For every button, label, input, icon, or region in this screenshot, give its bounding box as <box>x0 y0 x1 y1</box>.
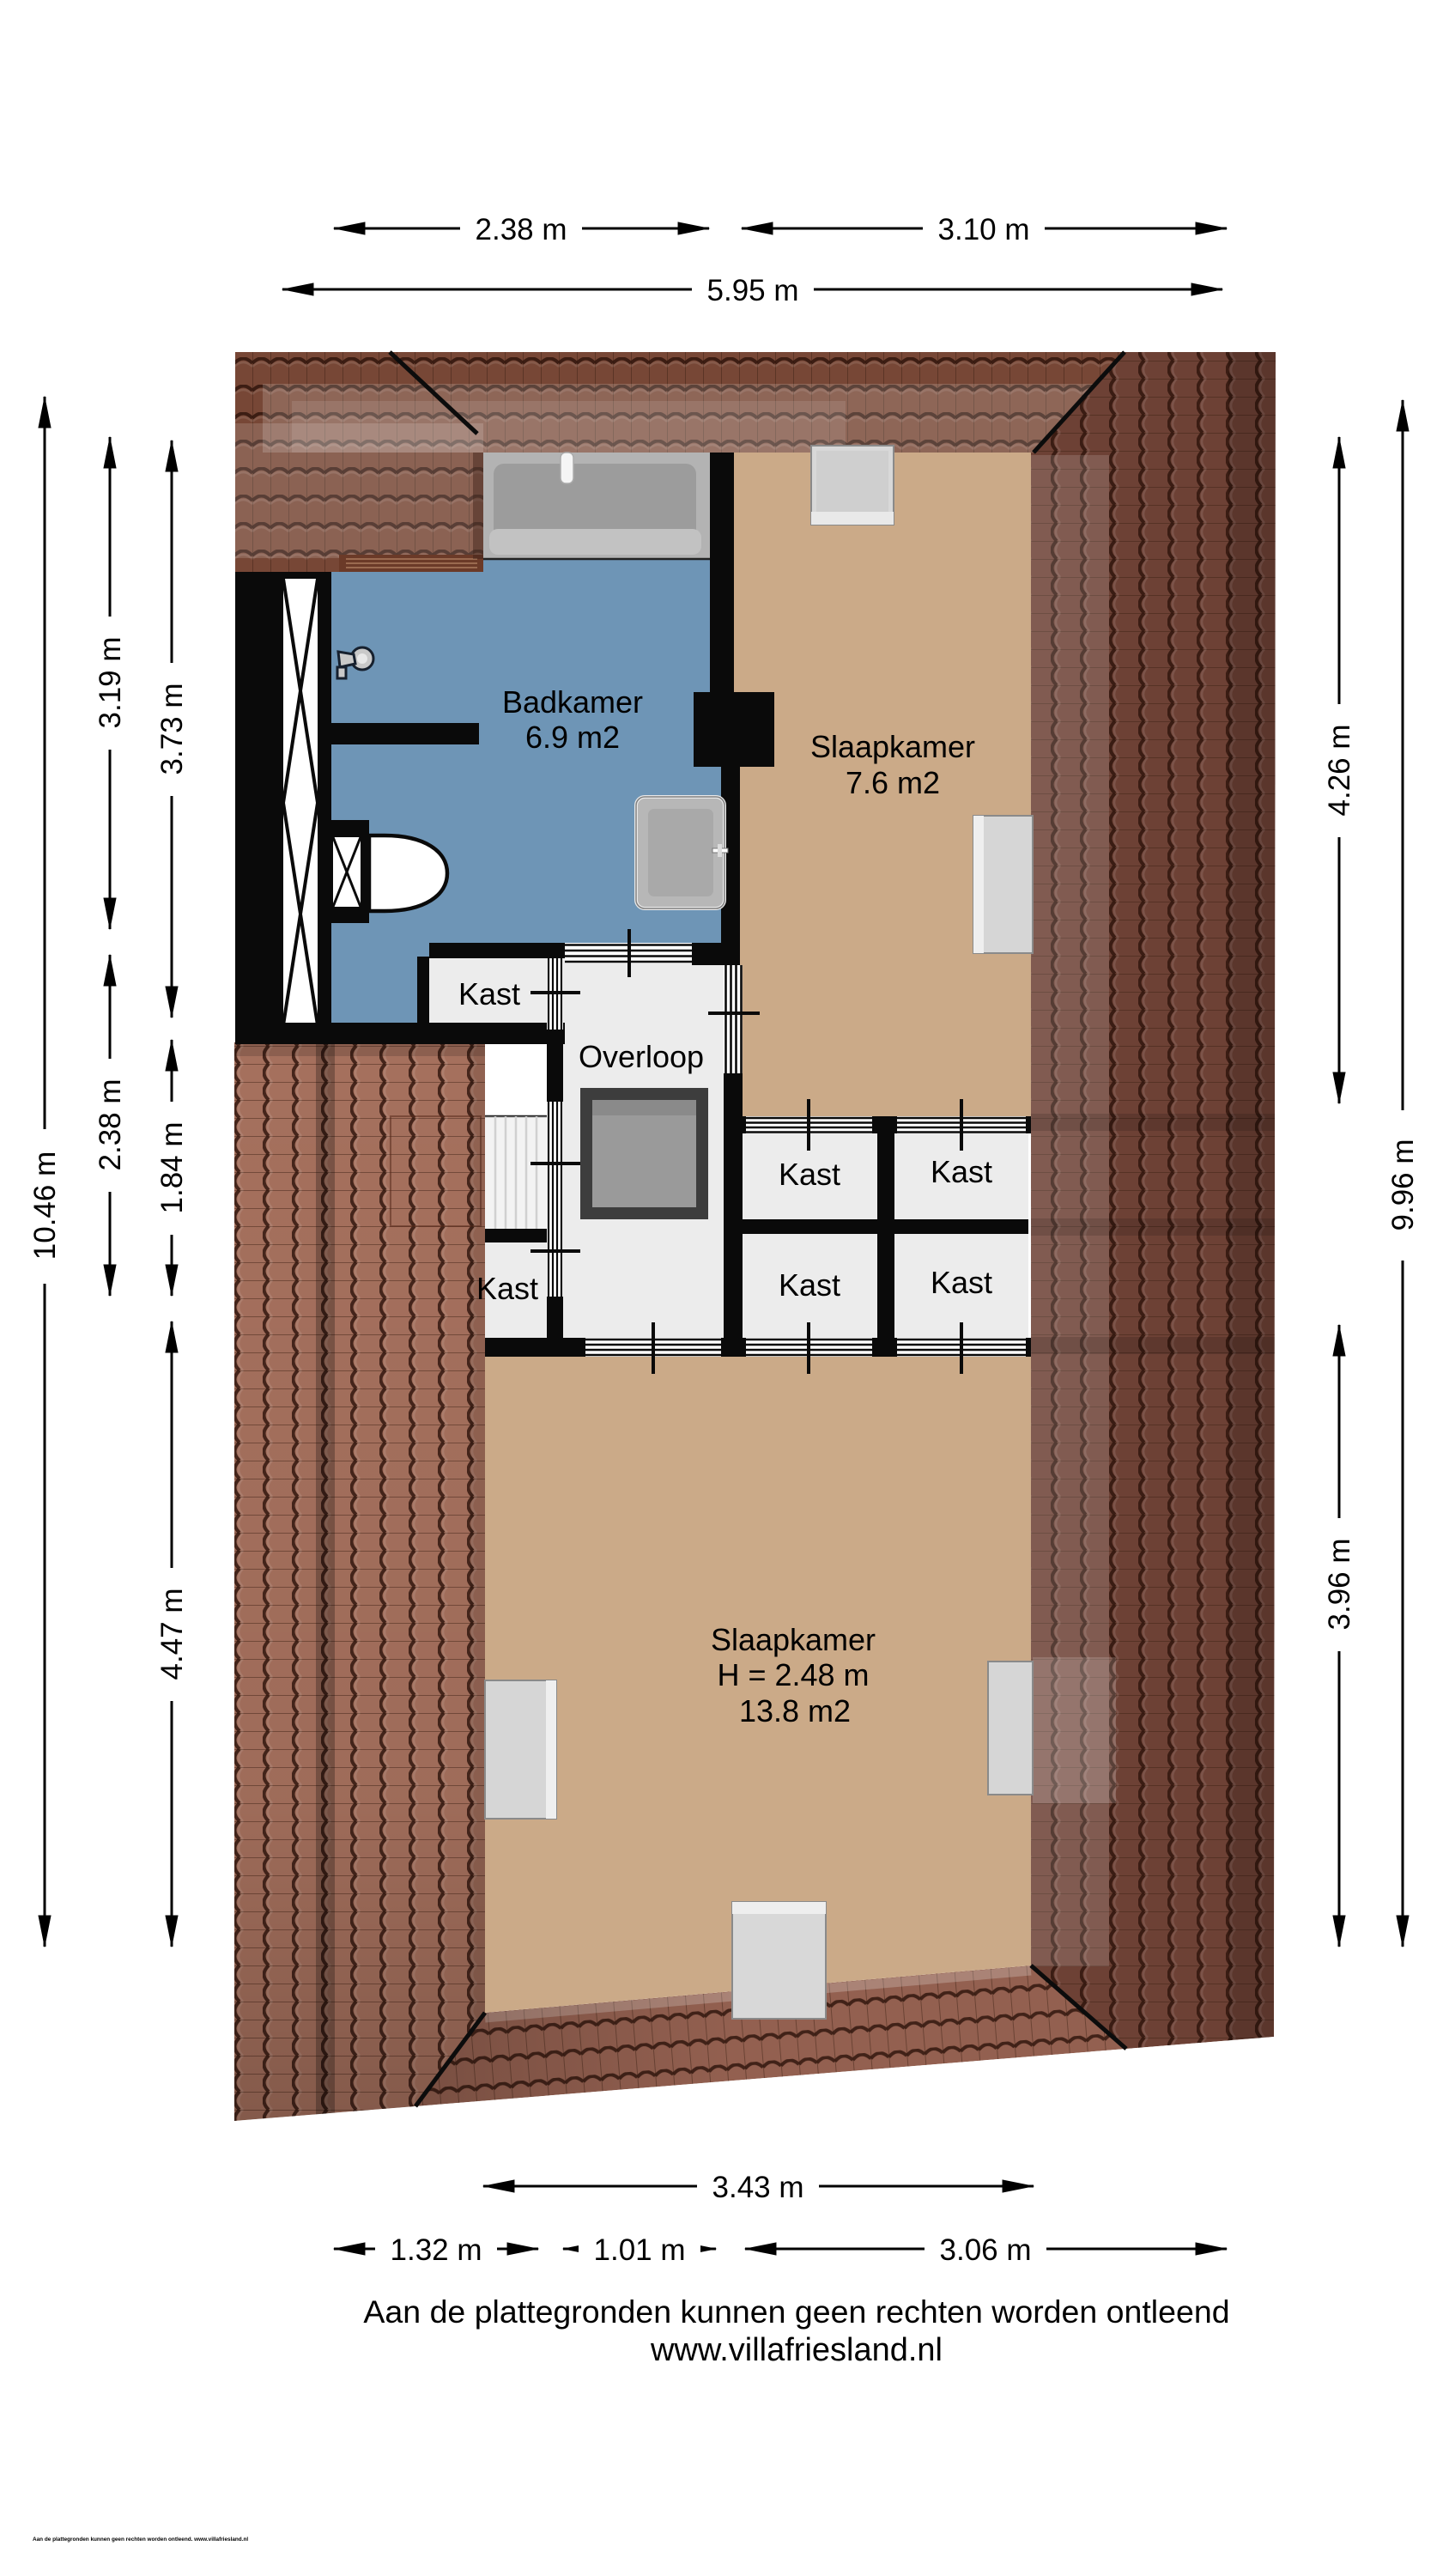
svg-text:Aan de plattegronden kunnen ge: Aan de plattegronden kunnen geen rechten… <box>33 2537 248 2543</box>
svg-text:5.95 m: 5.95 m <box>707 274 799 307</box>
svg-text:3.43 m: 3.43 m <box>712 2171 804 2204</box>
svg-text:Slaapkamer: Slaapkamer <box>810 729 975 764</box>
svg-text:Overloop: Overloop <box>579 1039 704 1074</box>
svg-text:10.46 m: 10.46 m <box>28 1151 62 1260</box>
svg-text:1.32 m: 1.32 m <box>391 2233 482 2267</box>
svg-text:7.6 m2: 7.6 m2 <box>846 765 940 800</box>
svg-text:Kast: Kast <box>931 1154 992 1189</box>
svg-text:1.84 m: 1.84 m <box>155 1122 189 1214</box>
svg-text:3.96 m: 3.96 m <box>1323 1539 1356 1631</box>
svg-text:3.10 m: 3.10 m <box>938 213 1030 246</box>
svg-text:Kast: Kast <box>779 1157 840 1192</box>
svg-text:Badkamer: Badkamer <box>502 684 643 720</box>
svg-text:4.26 m: 4.26 m <box>1323 725 1356 817</box>
svg-text:2.38 m: 2.38 m <box>476 213 567 246</box>
svg-text:Kast: Kast <box>458 976 520 1012</box>
svg-text:4.47 m: 4.47 m <box>155 1589 189 1680</box>
svg-text:9.96 m: 9.96 m <box>1386 1139 1420 1231</box>
svg-text:Aan de plattegronden kunnen ge: Aan de plattegronden kunnen geen rechten… <box>363 2293 1229 2330</box>
svg-text:1.01 m: 1.01 m <box>594 2233 686 2267</box>
svg-text:Kast: Kast <box>476 1271 538 1306</box>
svg-text:H = 2.48 m: H = 2.48 m <box>717 1657 869 1692</box>
svg-text:6.9 m2: 6.9 m2 <box>525 720 620 755</box>
svg-text:Kast: Kast <box>931 1265 992 1300</box>
svg-text:3.06 m: 3.06 m <box>940 2233 1032 2267</box>
svg-text:13.8 m2: 13.8 m2 <box>739 1693 851 1728</box>
svg-text:3.73 m: 3.73 m <box>155 683 189 775</box>
svg-text:www.villafriesland.nl: www.villafriesland.nl <box>650 2332 943 2368</box>
svg-text:2.38 m: 2.38 m <box>94 1079 127 1171</box>
svg-text:3.19 m: 3.19 m <box>94 637 127 729</box>
svg-text:Slaapkamer: Slaapkamer <box>711 1622 876 1657</box>
svg-text:Kast: Kast <box>779 1267 840 1303</box>
